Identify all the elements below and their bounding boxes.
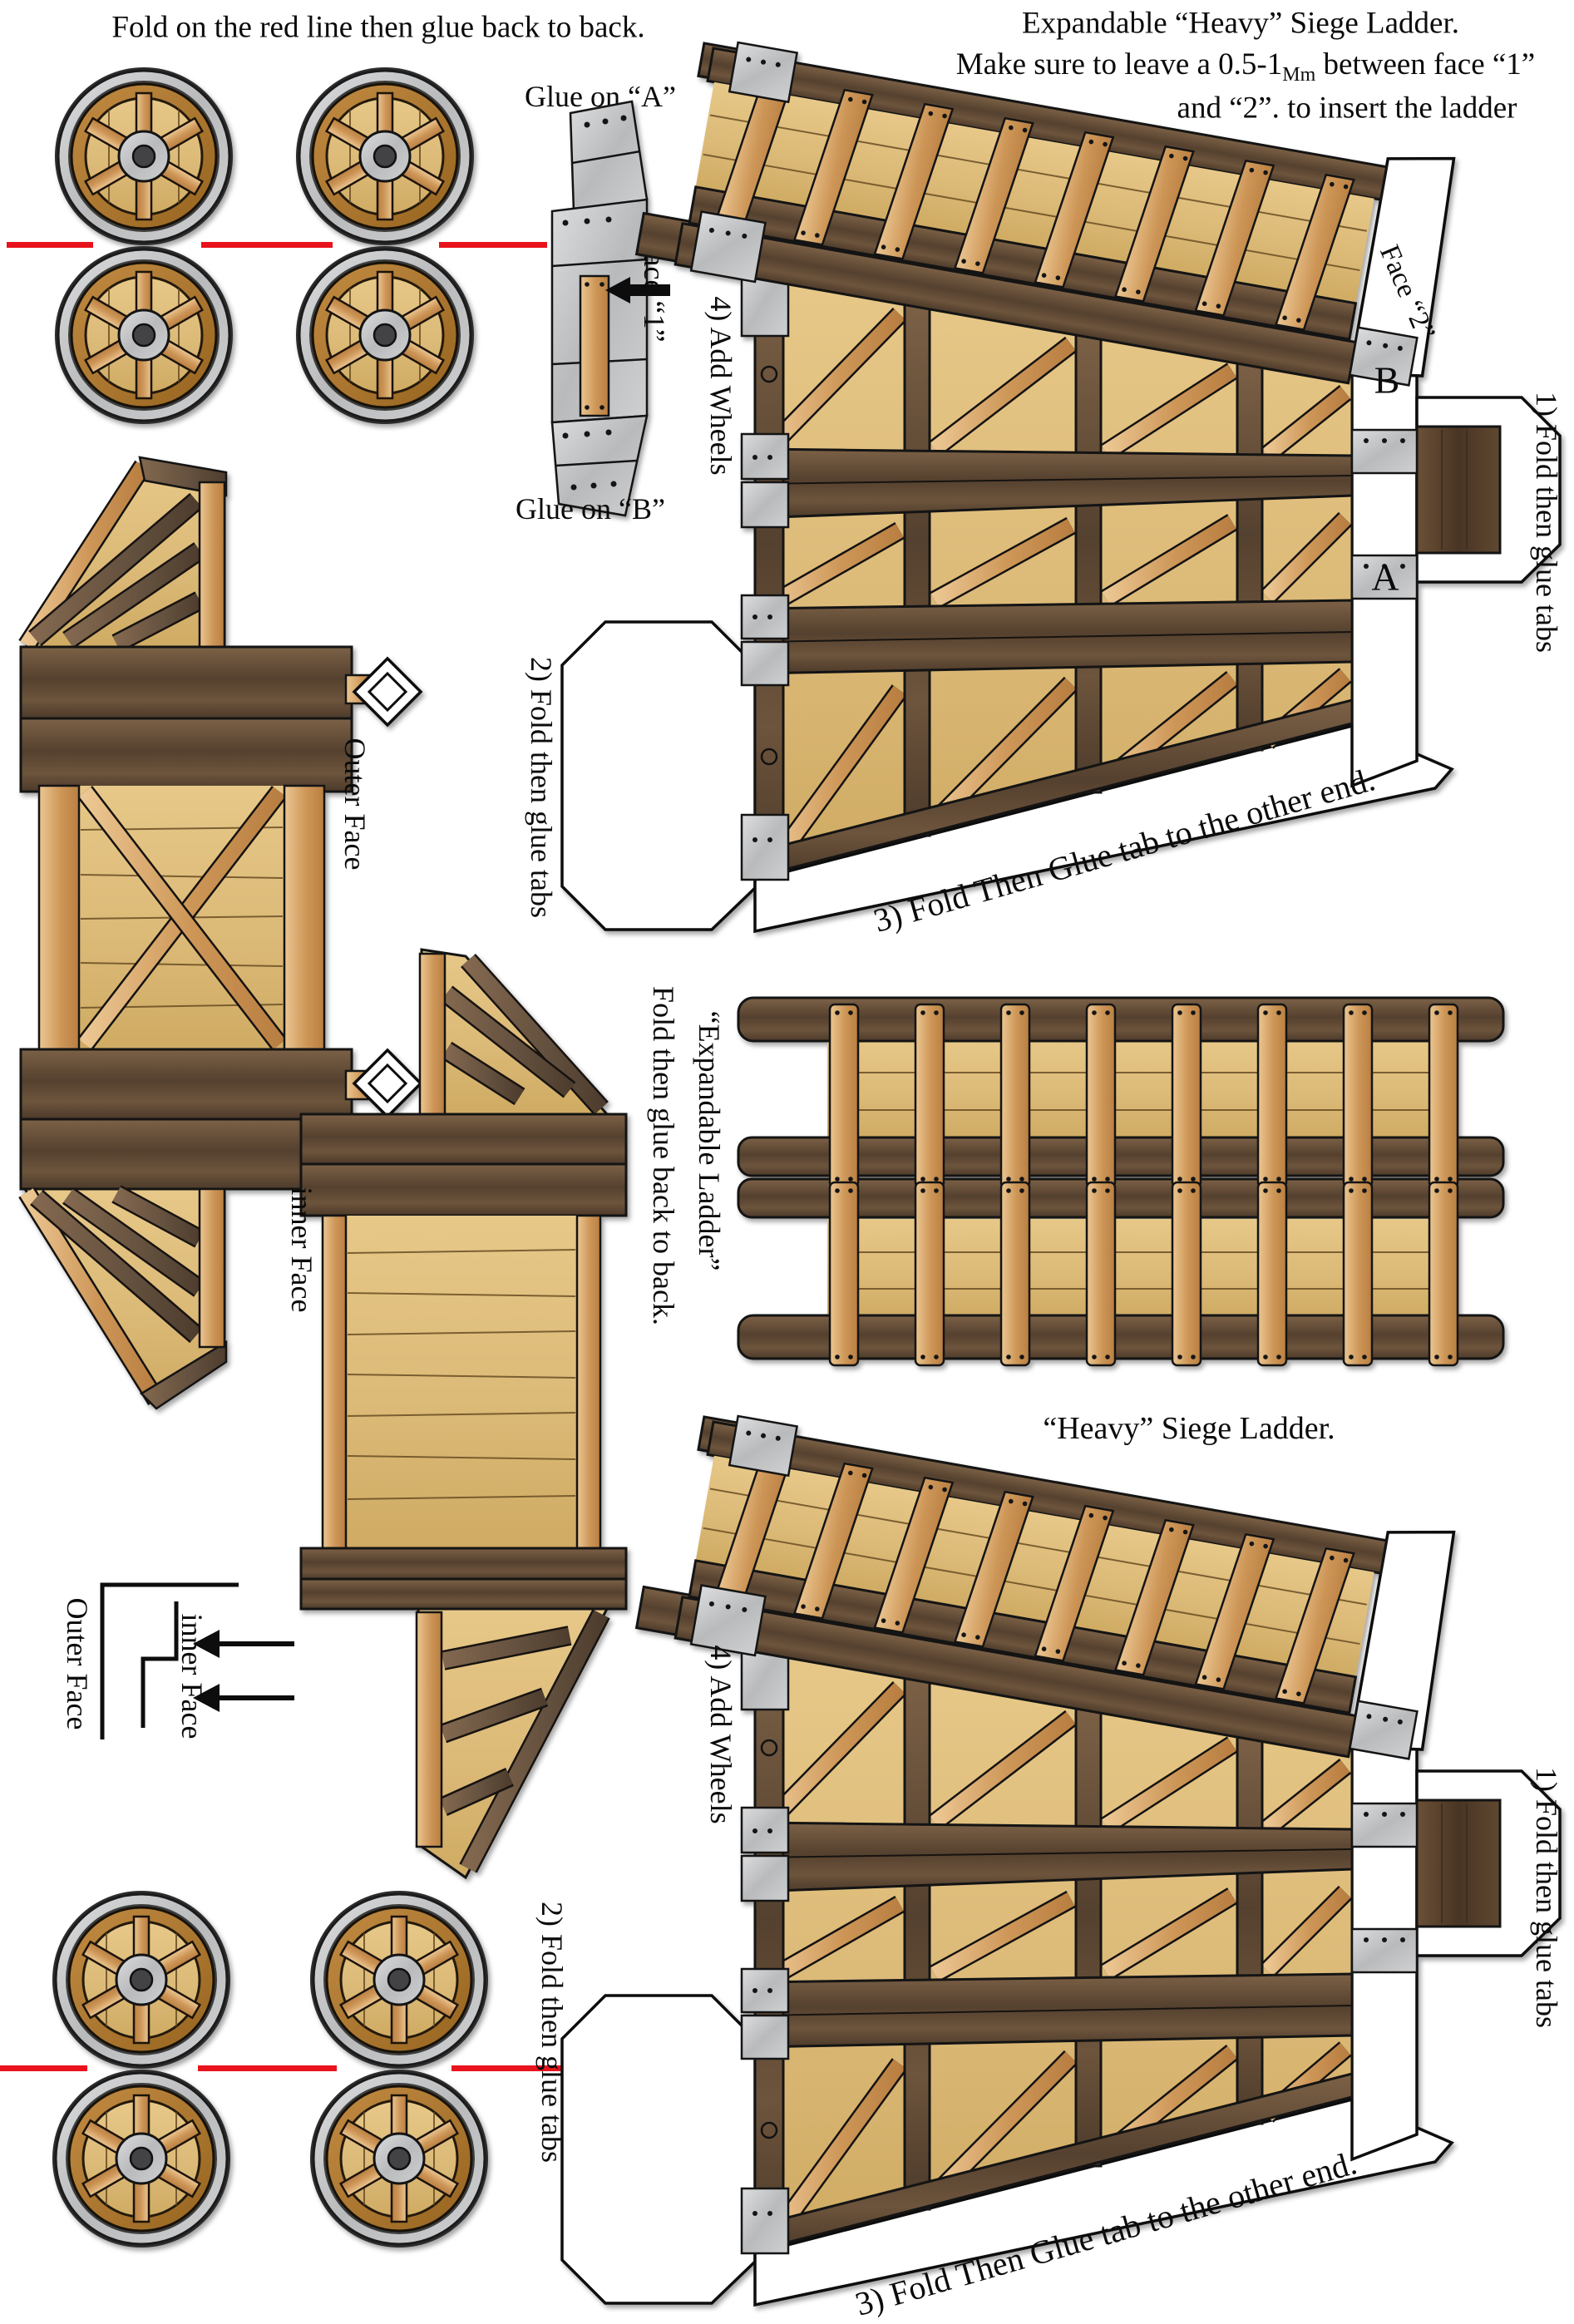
assembly-top <box>555 8 1570 948</box>
assembly-bottom-step4: 4) Add Wheels <box>703 1645 738 1823</box>
legend-outer-face: Outer Face <box>60 1598 95 1730</box>
assembly-bottom-step2: 2) Fold then glue tabs <box>535 1902 570 2163</box>
assembly-top-letter-b: B <box>1374 358 1400 402</box>
assembly-bottom <box>555 1382 1570 2322</box>
legend-inner-face: inner Face <box>175 1614 210 1739</box>
inner-face-label: inner Face <box>284 1187 319 1313</box>
fold-line-red <box>201 242 333 248</box>
papercraft-sheet: { "colors": { "background": "#ffffff", "… <box>0 0 1574 2322</box>
expandable-ladder-piece <box>732 989 1522 1372</box>
expandable-note: Fold then glue back to back. <box>646 986 681 1325</box>
assembly-top-step4: 4) Add Wheels <box>703 296 738 475</box>
outer-face-label: Outer Face <box>338 738 373 871</box>
wheel-group-top <box>52 65 476 431</box>
assembly-top-step2: 2) Fold then glue tabs <box>524 657 559 918</box>
assembly-bottom-step1: 1) Fold then glue tabs <box>1529 1767 1564 2028</box>
expandable-label: “Expandable Ladder” <box>692 1011 727 1271</box>
fold-line-red <box>198 2065 337 2071</box>
fold-line-red <box>7 242 93 248</box>
wheel-group-bottom <box>50 1888 491 2254</box>
assembly-top-letter-a: A <box>1371 555 1399 600</box>
fold-line-red <box>0 2065 87 2071</box>
assembly-top-step1: 1) Fold then glue tabs <box>1529 392 1564 653</box>
